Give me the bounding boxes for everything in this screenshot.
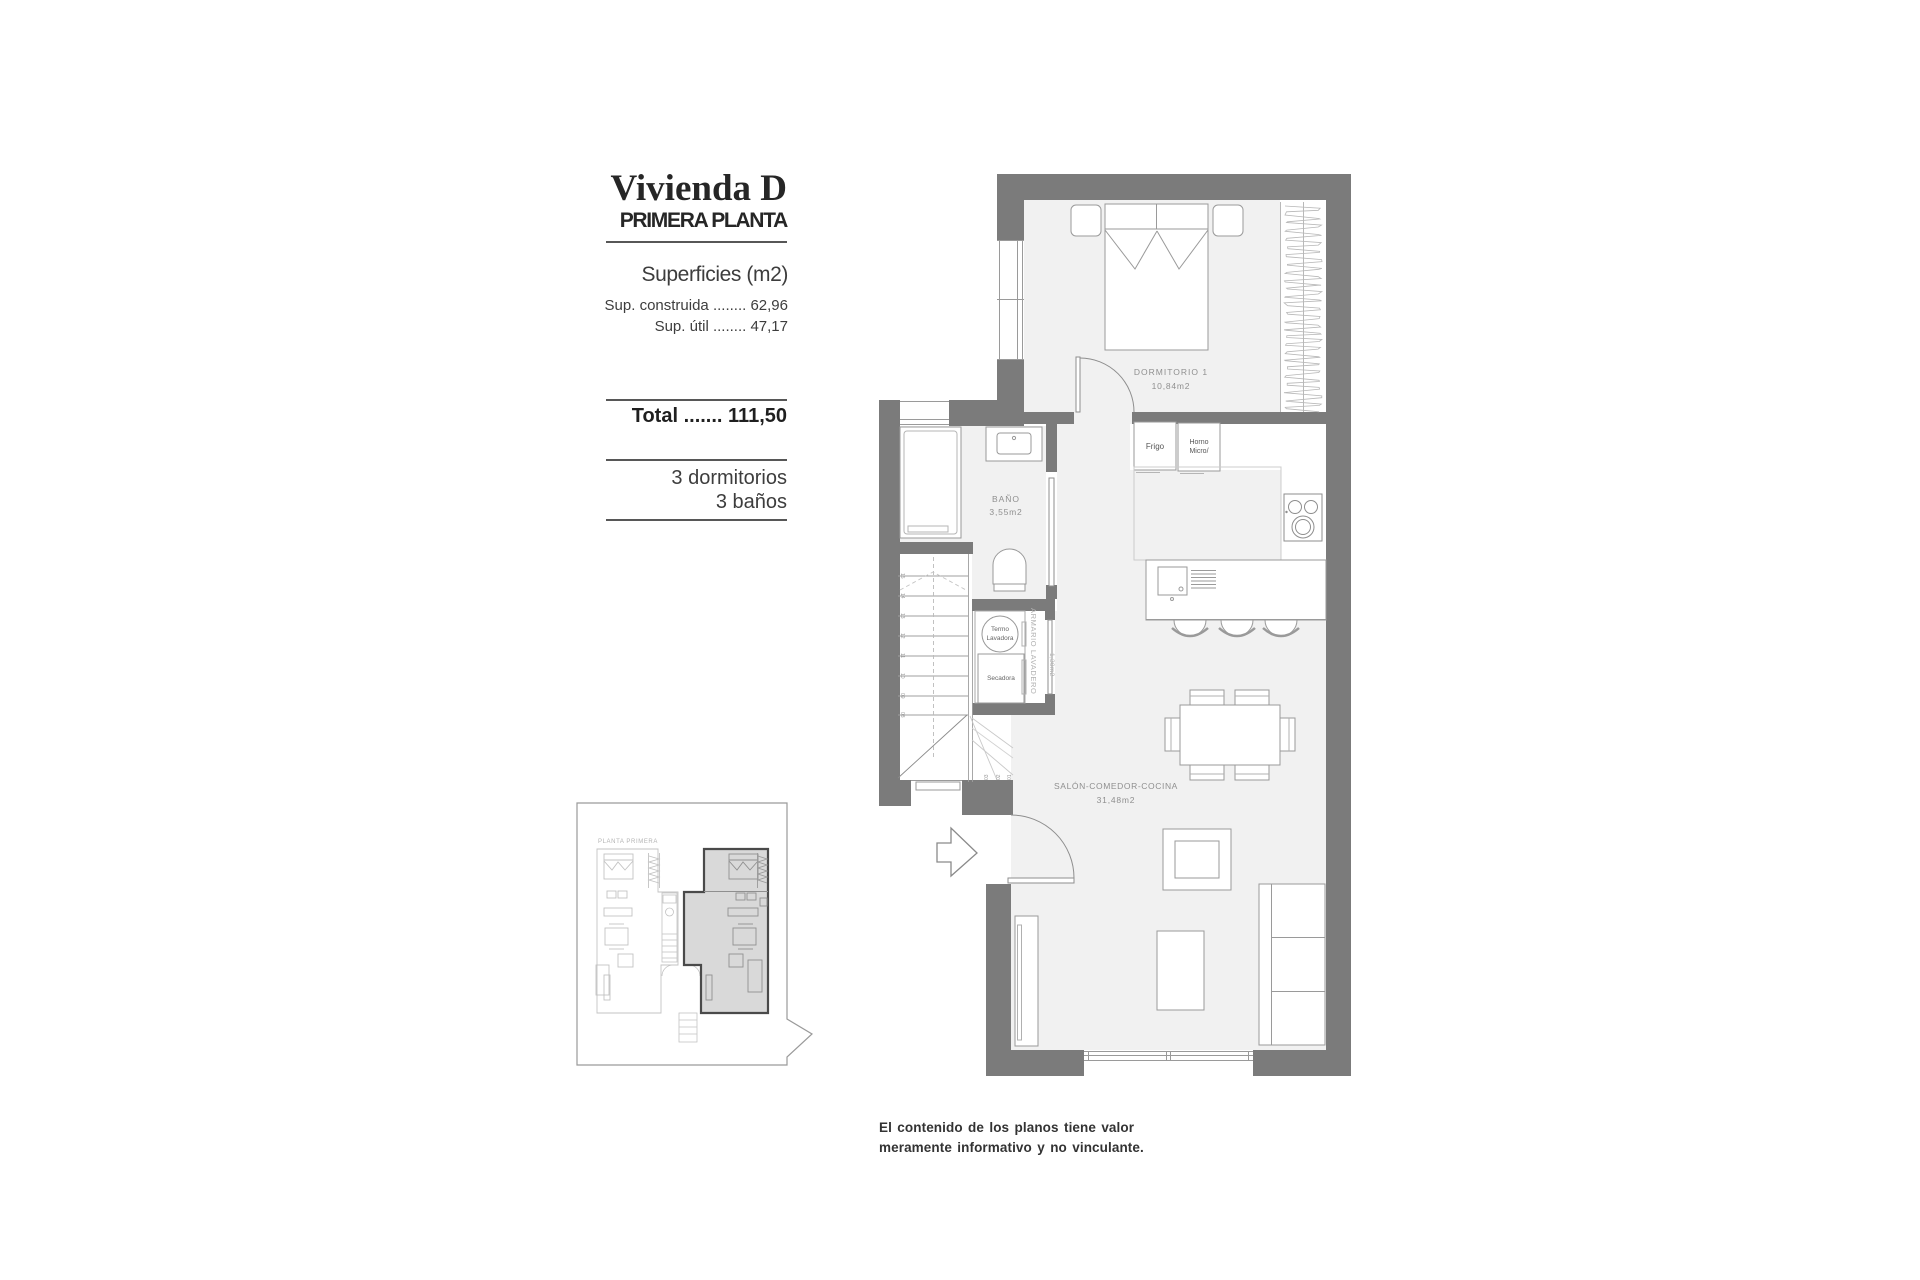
svg-text:01: 01 xyxy=(1007,774,1013,780)
svg-text:03: 03 xyxy=(984,774,990,780)
svg-text:Micro/: Micro/ xyxy=(1189,448,1208,455)
svg-text:ARMARIO LAVADERO: ARMARIO LAVADERO xyxy=(1029,608,1038,694)
svg-text:Horno: Horno xyxy=(1189,439,1208,446)
svg-text:10: 10 xyxy=(899,673,905,679)
svg-text:02: 02 xyxy=(996,774,1002,780)
svg-text:SALÓN-COMEDOR-COCINA: SALÓN-COMEDOR-COCINA xyxy=(1054,781,1178,791)
svg-text:Frigo: Frigo xyxy=(1146,442,1165,451)
svg-text:Termo: Termo xyxy=(991,626,1009,633)
svg-text:31,48m2: 31,48m2 xyxy=(1097,795,1136,805)
svg-text:08: 08 xyxy=(899,712,905,718)
svg-text:11: 11 xyxy=(899,653,905,658)
svg-text:Lavadora: Lavadora xyxy=(986,635,1013,642)
svg-text:BAÑO: BAÑO xyxy=(992,494,1020,504)
svg-text:12: 12 xyxy=(899,633,905,639)
svg-text:Secadora: Secadora xyxy=(987,675,1015,682)
svg-text:3,55m2: 3,55m2 xyxy=(989,507,1022,517)
svg-text:10,84m2: 10,84m2 xyxy=(1152,381,1191,391)
svg-text:14: 14 xyxy=(899,593,905,599)
svg-text:13: 13 xyxy=(899,613,905,619)
svg-text:09: 09 xyxy=(899,693,905,699)
svg-text:15: 15 xyxy=(899,573,905,579)
svg-text:1,30m2: 1,30m2 xyxy=(1048,653,1055,677)
svg-text:DORMITORIO 1: DORMITORIO 1 xyxy=(1134,367,1208,377)
svg-text:PLANTA PRIMERA: PLANTA PRIMERA xyxy=(598,839,658,845)
